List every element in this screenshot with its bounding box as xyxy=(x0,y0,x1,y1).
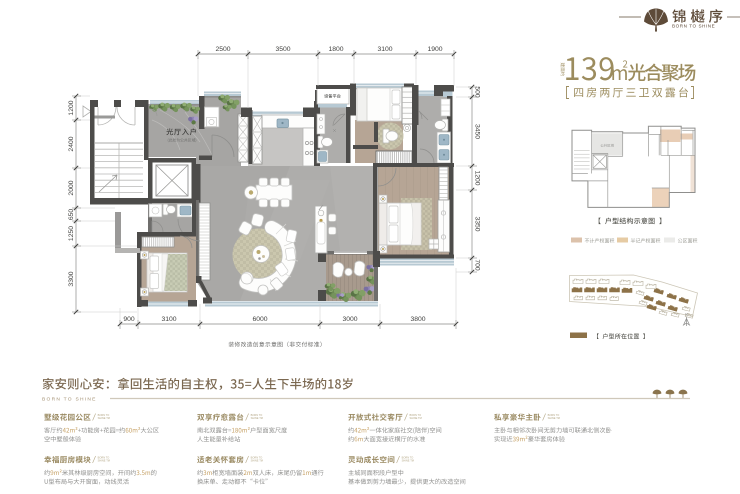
svg-text:2500: 2500 xyxy=(215,46,230,53)
svg-text:SHINE TM: SHINE TM xyxy=(402,459,414,463)
svg-text:SHINE TM: SHINE TM xyxy=(251,416,263,420)
svg-text:1250: 1250 xyxy=(68,226,75,241)
svg-text:3100: 3100 xyxy=(377,46,392,53)
svg-text:2000: 2000 xyxy=(68,180,75,195)
svg-text:650: 650 xyxy=(68,209,75,221)
svg-text:2400: 2400 xyxy=(68,136,75,151)
svg-text:3100: 3100 xyxy=(161,316,176,323)
svg-text:3350: 3350 xyxy=(474,216,481,231)
svg-text:1200: 1200 xyxy=(474,170,481,185)
svg-text:BORN TO SHINE: BORN TO SHINE xyxy=(42,397,97,403)
svg-text:1900: 1900 xyxy=(427,46,442,53)
svg-text:3000: 3000 xyxy=(342,316,357,323)
svg-text:BORN TO SHINE: BORN TO SHINE xyxy=(672,24,715,29)
svg-text:3300: 3300 xyxy=(68,271,75,286)
svg-text:SHINE TM: SHINE TM xyxy=(98,416,110,420)
svg-text:SHINE TM: SHINE TM xyxy=(409,416,421,420)
svg-text:700: 700 xyxy=(474,259,481,271)
svg-text:500: 500 xyxy=(474,86,481,98)
svg-text:SHINE TM: SHINE TM xyxy=(548,416,560,420)
svg-text:3800: 3800 xyxy=(410,316,425,323)
svg-text:3500: 3500 xyxy=(275,46,290,53)
svg-text:SHINE TM: SHINE TM xyxy=(251,459,263,463)
svg-text:1800: 1800 xyxy=(328,46,343,53)
svg-text:6000: 6000 xyxy=(252,316,267,323)
svg-text:3450: 3450 xyxy=(474,124,481,139)
svg-text:SHINE TM: SHINE TM xyxy=(98,459,110,463)
svg-text:900: 900 xyxy=(123,316,135,323)
svg-text:1200: 1200 xyxy=(68,100,75,115)
